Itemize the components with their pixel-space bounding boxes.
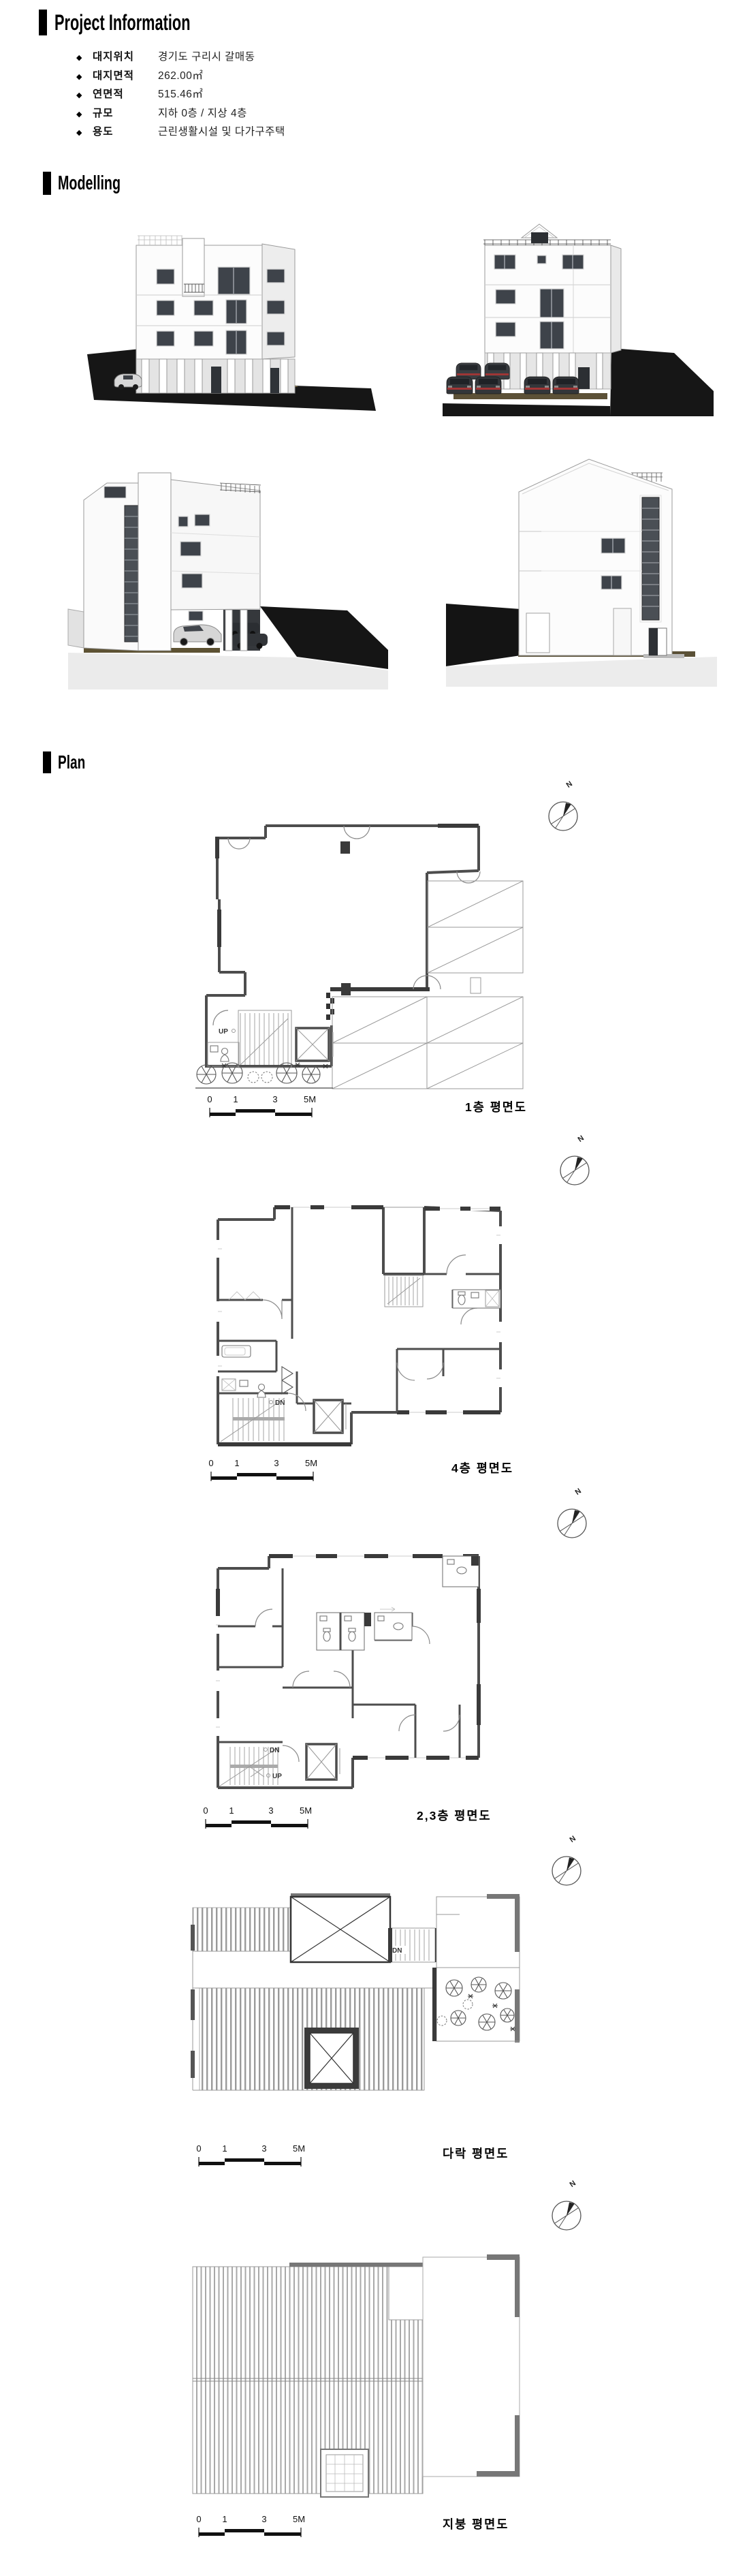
info-label: 규모 (93, 105, 158, 120)
section-title: Plan (58, 751, 85, 773)
header-bar-icon (43, 751, 51, 773)
svg-text:3: 3 (274, 1458, 278, 1468)
project-information-header: Project Information (39, 10, 254, 35)
svg-text:N: N (569, 2179, 577, 2188)
svg-text:0: 0 (196, 2143, 201, 2154)
svg-text:5M: 5M (293, 2143, 305, 2154)
caption-2-3f-plan: 2,3층 평면도 (417, 1807, 492, 1824)
svg-text:1: 1 (222, 2143, 227, 2154)
floor-plan-4f: DN (195, 1199, 552, 1461)
svg-text:1: 1 (222, 2514, 227, 2524)
svg-text:0: 0 (208, 1458, 213, 1468)
modelling-header: Modelling (43, 172, 150, 195)
svg-text:1: 1 (229, 1805, 234, 1816)
render-side-elevation (446, 450, 718, 687)
floor-plan-roof (187, 2252, 524, 2507)
svg-text:0: 0 (203, 1805, 208, 1816)
scale-bar: 0 1 3 5M (192, 2511, 315, 2543)
info-label: 대지면적 (93, 67, 158, 82)
svg-text:DN: DN (270, 1747, 279, 1754)
render-side-perspective (65, 451, 388, 689)
svg-text:5M: 5M (293, 2514, 305, 2524)
info-row-site-area: ◆ 대지면적 262.00㎡ (76, 67, 285, 87)
svg-text:UP: UP (219, 1028, 228, 1036)
floor-plan-1f: UP (187, 794, 565, 1090)
caption-attic-plan: 다락 평면도 (443, 2145, 509, 2162)
svg-text:5M: 5M (305, 1458, 317, 1468)
diamond-bullet-icon: ◆ (76, 53, 93, 62)
svg-text:N: N (577, 1134, 586, 1143)
caption-1f-plan: 1층 평면도 (465, 1098, 527, 1115)
section-title: Modelling (58, 172, 121, 195)
plan-header: Plan (43, 751, 98, 773)
floor-plan-attic: DN (187, 1887, 524, 2126)
svg-text:3: 3 (261, 2514, 266, 2524)
floor-plan-2-3f: DN UP (191, 1548, 562, 1797)
svg-text:3: 3 (272, 1094, 277, 1104)
svg-text:1: 1 (233, 1094, 238, 1104)
info-value: 경기도 구리시 갈매동 (158, 48, 255, 63)
header-bar-icon (43, 172, 51, 195)
svg-text:N: N (565, 779, 574, 789)
svg-text:3: 3 (268, 1805, 273, 1816)
render-rear-elevation (443, 210, 715, 418)
north-arrow-icon: N (545, 2177, 588, 2242)
svg-text:N: N (569, 1834, 577, 1844)
svg-text:UP: UP (272, 1773, 282, 1780)
section-title: Project Information (54, 10, 190, 35)
caption-4f-plan: 4층 평면도 (451, 1459, 513, 1476)
scale-bar: 0 1 3 5M (203, 1091, 325, 1123)
info-label: 연면적 (93, 86, 158, 101)
svg-text:3: 3 (261, 2143, 266, 2154)
svg-text:1: 1 (234, 1458, 239, 1468)
info-value: 지하 0층 / 지상 4층 (158, 105, 247, 120)
info-row-scale: ◆ 규모 지하 0층 / 지상 4층 (76, 105, 285, 124)
north-arrow-icon: N (550, 1485, 594, 1550)
svg-text:DN: DN (275, 1399, 285, 1407)
scale-bar: 0 1 3 5M (204, 1455, 327, 1487)
scale-bar: 0 1 3 5M (199, 1803, 321, 1834)
parked-cars (228, 623, 268, 649)
render-front-elevation (82, 204, 388, 416)
svg-text:N: N (574, 1487, 583, 1496)
car-icon (174, 625, 221, 646)
portfolio-page: { "page": {"background": "#ffffff", "acc… (0, 0, 749, 2576)
svg-text:DN: DN (392, 1947, 402, 1955)
svg-text:0: 0 (207, 1094, 212, 1104)
svg-text:5M: 5M (300, 1805, 312, 1816)
info-value: 515.46㎡ (158, 86, 203, 101)
svg-text:0: 0 (196, 2514, 201, 2524)
info-label: 대지위치 (93, 48, 158, 63)
north-arrow-icon: N (545, 1833, 588, 1897)
diamond-bullet-icon: ◆ (76, 91, 93, 99)
info-value: 262.00㎡ (158, 67, 203, 82)
header-bar-icon (39, 10, 47, 35)
scale-bar: 0 1 3 5M (192, 2141, 315, 2172)
diamond-bullet-icon: ◆ (76, 128, 93, 137)
info-row-gross-area: ◆ 연면적 515.46㎡ (76, 86, 285, 105)
diamond-bullet-icon: ◆ (76, 72, 93, 81)
diamond-bullet-icon: ◆ (76, 110, 93, 119)
project-info-list: ◆ 대지위치 경기도 구리시 갈매동 ◆ 대지면적 262.00㎡ ◆ 연면적 … (76, 48, 285, 142)
info-row-use: ◆ 용도 근린생활시설 및 다가구주택 (76, 123, 285, 142)
info-label: 용도 (93, 123, 158, 138)
svg-text:5M: 5M (304, 1094, 316, 1104)
info-value: 근린생활시설 및 다가구주택 (158, 123, 285, 138)
caption-roof-plan: 지붕 평면도 (443, 2515, 509, 2532)
info-row-site-location: ◆ 대지위치 경기도 구리시 갈매동 (76, 48, 285, 67)
north-arrow-icon: N (553, 1132, 596, 1197)
